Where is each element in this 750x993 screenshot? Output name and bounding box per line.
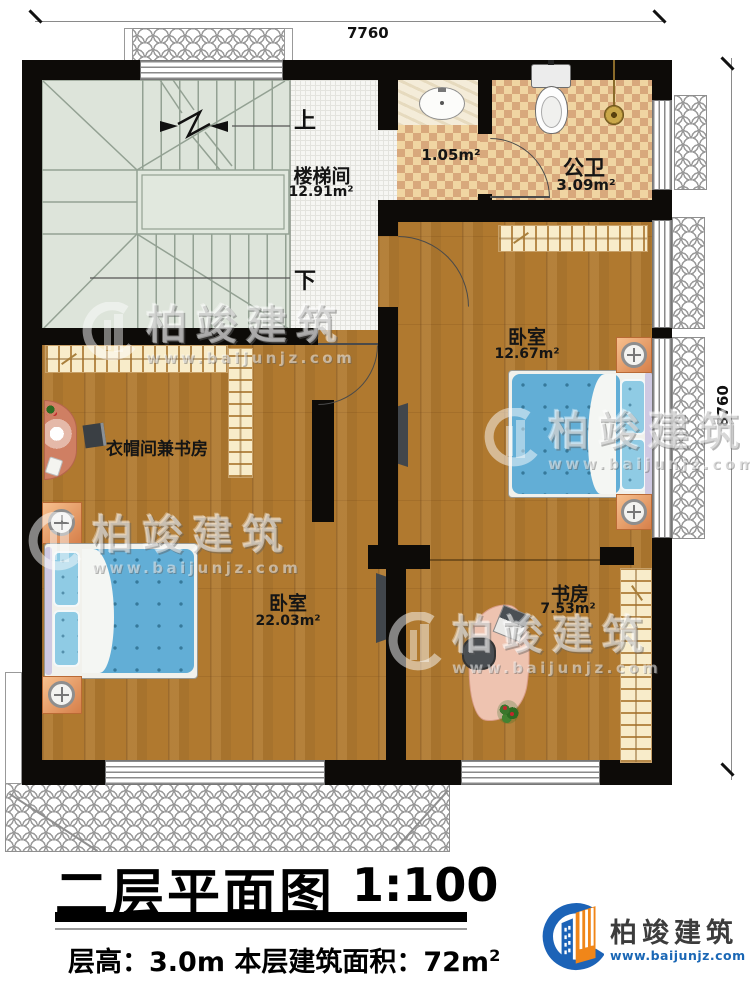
pillow bbox=[53, 610, 80, 667]
tv-bedroom-left bbox=[376, 573, 386, 643]
headboard-right bbox=[645, 372, 652, 496]
wall-hall-right-b bbox=[378, 200, 398, 236]
wardrobe-study bbox=[620, 568, 652, 763]
window-right-2 bbox=[652, 220, 672, 328]
lamp-icon bbox=[48, 509, 75, 536]
window-right-3 bbox=[652, 338, 672, 538]
wall-passage-stub-right bbox=[600, 547, 634, 565]
roof-band-right-2 bbox=[672, 217, 705, 329]
study-area: 7.53m² bbox=[540, 601, 595, 617]
wall-center bbox=[386, 547, 406, 765]
dimension-tick bbox=[720, 762, 734, 776]
lamp-icon bbox=[621, 499, 647, 525]
stair-down-label: 下 bbox=[294, 263, 316, 295]
roof-band-right-3 bbox=[672, 337, 705, 539]
floor-info-text: 层高：3.0m 本层建筑面积：72m bbox=[68, 947, 489, 978]
bathroom-area: 3.09m² bbox=[556, 176, 615, 194]
stair-hall-floor bbox=[378, 130, 397, 200]
window-right-1 bbox=[652, 100, 672, 190]
plant-berry bbox=[503, 706, 507, 710]
wardrobe-cloakroom-horizontal bbox=[45, 345, 228, 373]
bedroom-right-area: 12.67m² bbox=[494, 346, 559, 362]
pillow bbox=[53, 551, 80, 607]
vestibule-area: 1.05m² bbox=[421, 146, 480, 164]
stair-up-label: 上 bbox=[294, 103, 316, 135]
brand-name: 柏竣建筑 bbox=[610, 919, 746, 949]
title-underline-thin bbox=[55, 928, 467, 930]
stair-arrow bbox=[160, 121, 178, 132]
wall-bath-bottom bbox=[398, 200, 652, 222]
dimension-tick bbox=[720, 56, 734, 70]
tv-bedroom-right bbox=[398, 403, 408, 467]
window-bottom-study bbox=[461, 760, 600, 785]
toilet-button bbox=[548, 60, 554, 65]
brand-logo: 柏竣建筑 www.baijunjz.com bbox=[538, 898, 746, 984]
dimension-line-top bbox=[35, 21, 663, 22]
window-bottom-left bbox=[105, 760, 325, 785]
window-top bbox=[140, 60, 283, 80]
sink-faucet bbox=[438, 88, 446, 92]
toilet-bowl-inner bbox=[541, 96, 562, 128]
floor-info-sup: 2 bbox=[489, 946, 500, 965]
dimension-top-value: 7760 bbox=[347, 24, 389, 42]
title-underline-thick bbox=[55, 912, 467, 922]
monitor-icon bbox=[83, 423, 107, 449]
stairwell-area: 12.91m² bbox=[288, 184, 353, 200]
roof-edge-left bbox=[5, 672, 22, 784]
wall-hall-right-a bbox=[378, 60, 398, 130]
dimension-right-value: 8760 bbox=[714, 371, 732, 441]
brand-logo-icon bbox=[538, 898, 604, 984]
lamp-icon bbox=[48, 681, 75, 708]
flower-icon bbox=[44, 403, 57, 416]
cloakroom-door-leaf bbox=[318, 343, 378, 345]
shower-rod bbox=[613, 60, 615, 110]
wardrobe-cloakroom-vertical bbox=[228, 348, 253, 478]
wall-passage-stub-left bbox=[368, 545, 430, 569]
sink-drain bbox=[440, 101, 444, 105]
pillow bbox=[620, 438, 646, 491]
lamp-icon bbox=[621, 342, 647, 368]
office-chair bbox=[462, 637, 496, 670]
headboard-left bbox=[45, 547, 52, 675]
floor-info: 层高：3.0m 本层建筑面积：72m2 bbox=[68, 940, 500, 979]
brand-url: www.baijunjz.com bbox=[610, 948, 746, 963]
shower-head bbox=[604, 105, 624, 125]
wall-stair-bottom bbox=[42, 328, 318, 345]
stair-arrow bbox=[210, 121, 228, 132]
wall-top bbox=[22, 60, 672, 80]
toilet-tank bbox=[531, 64, 571, 88]
passage-threshold-line bbox=[430, 559, 600, 561]
plant-icon bbox=[497, 700, 519, 724]
blanket-fold-right bbox=[588, 374, 616, 494]
wall-left bbox=[22, 60, 42, 785]
roof-band-top bbox=[128, 28, 290, 62]
wall-hall-right-c bbox=[378, 307, 398, 547]
wall-bath-stub bbox=[478, 60, 492, 134]
roof-band-right-1 bbox=[674, 95, 707, 190]
bedroom-left-label: 卧室 bbox=[269, 589, 307, 616]
roof-band-bottom bbox=[5, 783, 450, 852]
pillow bbox=[620, 379, 646, 435]
plan-scale: 1:100 bbox=[352, 858, 498, 912]
floor-plan-canvas: 7760 8760 bbox=[0, 0, 750, 993]
wall-hall-left bbox=[312, 400, 334, 522]
stair-diagram bbox=[42, 80, 290, 330]
cloakroom-label: 衣帽间兼书房 bbox=[106, 435, 208, 460]
bathroom-door-leaf bbox=[490, 196, 550, 198]
floor-divider bbox=[290, 80, 291, 330]
bedroom-left-area: 22.03m² bbox=[255, 613, 320, 629]
